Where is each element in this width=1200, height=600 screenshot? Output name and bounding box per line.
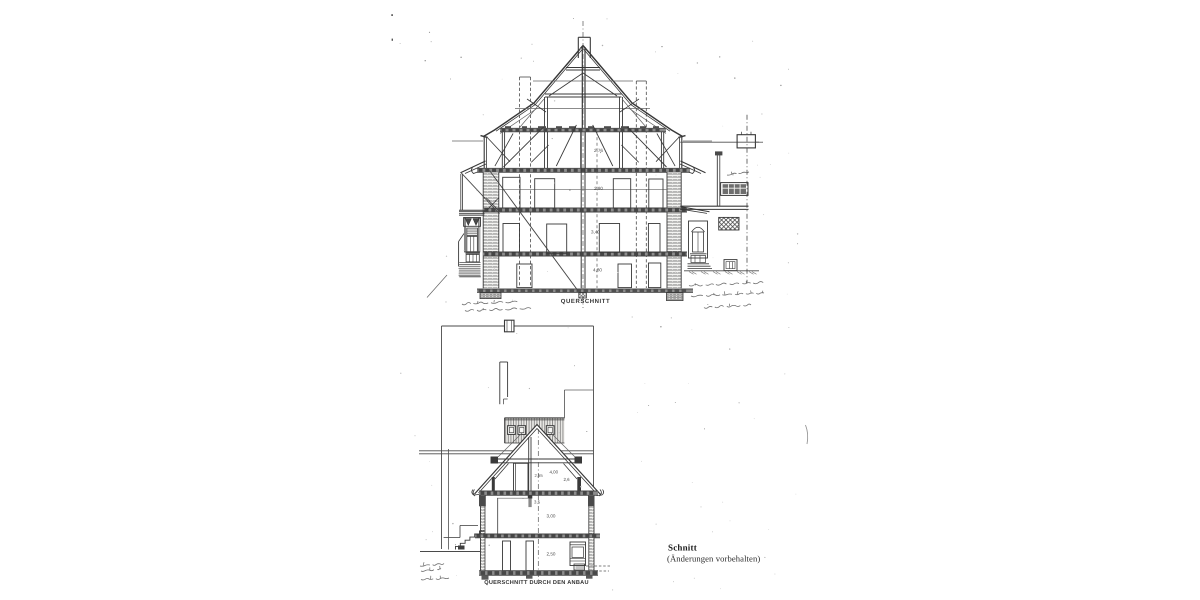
svg-text:4,80: 4,80 <box>593 268 602 273</box>
svg-text:2,76: 2,76 <box>594 148 603 153</box>
svg-text:QUERSCHNITT: QUERSCHNITT <box>561 298 610 305</box>
svg-text:Schnitt: Schnitt <box>668 543 697 553</box>
svg-text:2,55: 2,55 <box>535 473 544 478</box>
svg-text:QUERSCHNITT DURCH DEN ANBAU: QUERSCHNITT DURCH DEN ANBAU <box>484 580 589 586</box>
svg-text:2,80: 2,80 <box>594 186 603 191</box>
svg-text:3,40: 3,40 <box>591 230 600 235</box>
svg-text:4,00: 4,00 <box>550 470 559 475</box>
svg-text:2,50: 2,50 <box>547 552 556 557</box>
svg-text:(Änderungen vorbehalten): (Änderungen vorbehalten) <box>667 554 760 564</box>
svg-text:2,6: 2,6 <box>564 477 571 482</box>
svg-text:3,00: 3,00 <box>547 514 556 519</box>
svg-text:3,5: 3,5 <box>534 500 541 505</box>
